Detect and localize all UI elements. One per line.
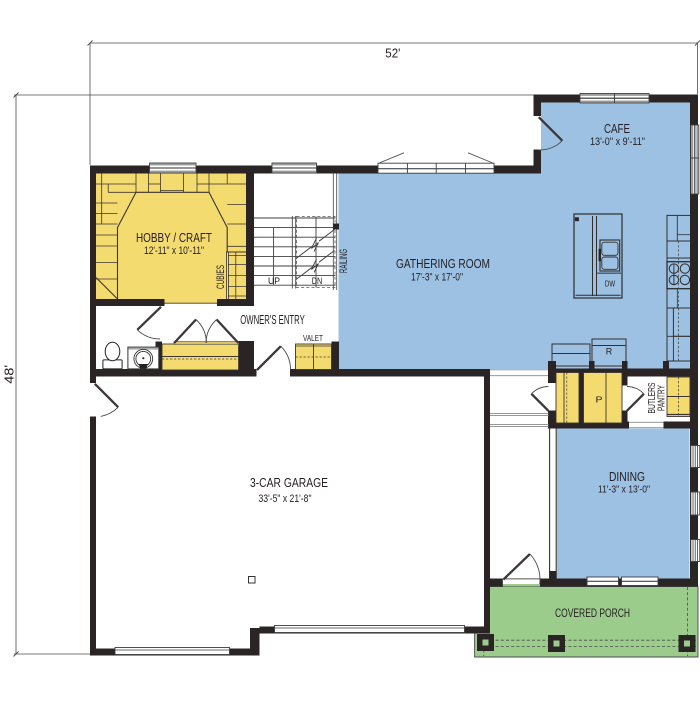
svg-text:3-CAR GARAGE: 3-CAR GARAGE [250, 475, 328, 490]
svg-text:DN: DN [312, 276, 323, 286]
svg-text:UP: UP [268, 276, 280, 286]
svg-text:VALET: VALET [303, 333, 324, 343]
svg-text:OWNER'S ENTRY: OWNER'S ENTRY [240, 313, 305, 327]
svg-text:COVERED PORCH: COVERED PORCH [555, 606, 630, 620]
svg-text:17'-3" x 17'-0": 17'-3" x 17'-0" [411, 272, 463, 284]
svg-text:PANTRY: PANTRY [657, 385, 668, 411]
svg-text:DINING: DINING [609, 469, 645, 484]
svg-text:12'-11" x 10'-11": 12'-11" x 10'-11" [144, 245, 204, 257]
svg-text:P: P [596, 395, 603, 405]
svg-text:CAFE: CAFE [604, 121, 630, 136]
svg-text:R: R [606, 347, 613, 357]
svg-text:52': 52' [385, 46, 400, 61]
svg-text:11'-3" x 13'-0": 11'-3" x 13'-0" [598, 485, 650, 496]
svg-text:HOBBY / CRAFT: HOBBY / CRAFT [136, 230, 212, 245]
svg-text:GATHERING ROOM: GATHERING ROOM [396, 256, 490, 271]
svg-text:48': 48' [1, 365, 16, 384]
svg-text:DW: DW [605, 280, 615, 289]
svg-text:33'-5" x 21'-8": 33'-5" x 21'-8" [259, 493, 312, 505]
svg-text:13'-0" x 9'-11": 13'-0" x 9'-11" [590, 136, 645, 148]
svg-text:CUBIES: CUBIES [215, 265, 227, 289]
svg-text:RAILING: RAILING [338, 249, 350, 273]
